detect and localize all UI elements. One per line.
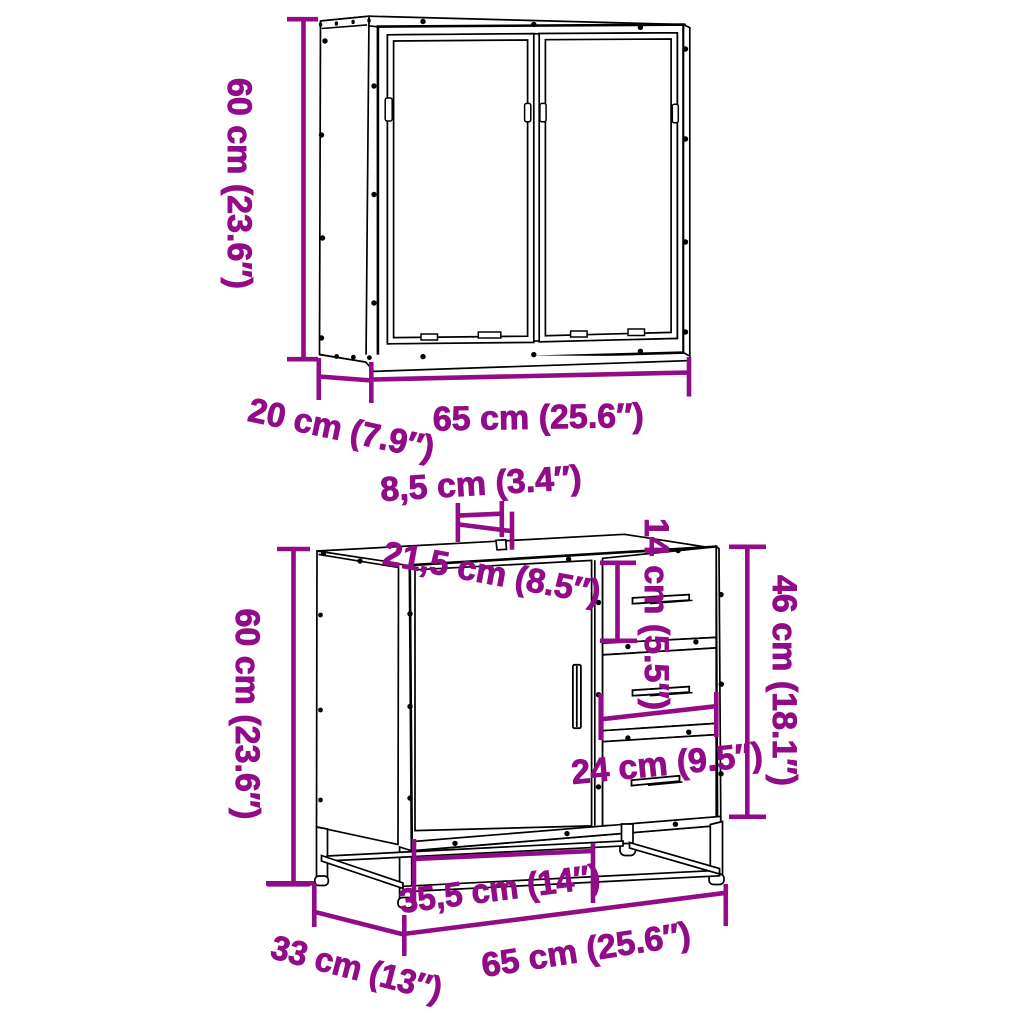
svg-text:65 cm (25.6″): 65 cm (25.6″) [479, 915, 693, 985]
svg-text:20 cm (7.9″): 20 cm (7.9″) [245, 391, 438, 468]
svg-text:60 cm (23.6″): 60 cm (23.6″) [220, 78, 258, 289]
svg-text:46 cm (18.1″): 46 cm (18.1″) [765, 575, 803, 786]
svg-text:65 cm (25.6″): 65 cm (25.6″) [432, 397, 644, 439]
svg-text:14 cm (5.5″): 14 cm (5.5″) [637, 518, 675, 710]
svg-text:33 cm (13″): 33 cm (13″) [267, 929, 446, 1009]
svg-text:8,5 cm (3.4″): 8,5 cm (3.4″) [379, 459, 582, 509]
svg-text:60 cm (23.6″): 60 cm (23.6″) [228, 609, 266, 820]
